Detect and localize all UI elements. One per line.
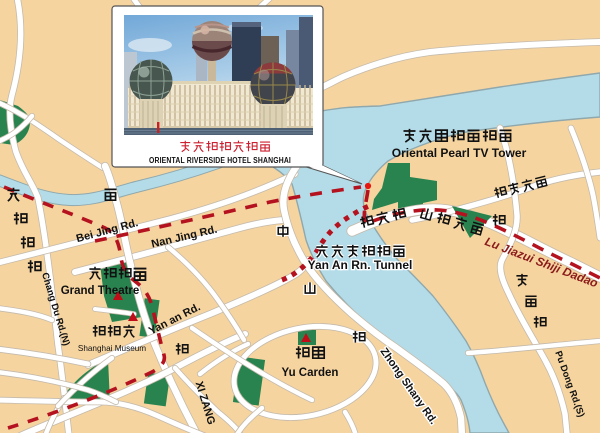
svg-text:Oriental Pearl TV Tower: Oriental Pearl TV Tower <box>392 146 527 160</box>
svg-text:Grand Theatre: Grand Theatre <box>61 285 140 297</box>
svg-text:Yan An Rn. Tunnel: Yan An Rn. Tunnel <box>308 258 413 272</box>
svg-text:ORIENTAL RIVERSIDE HOTEL SH: ORIENTAL RIVERSIDE HOTEL SHANGHAI <box>149 156 291 165</box>
svg-text:Yu Carden: Yu Carden <box>282 367 339 379</box>
svg-text:Shanghai Museum: Shanghai Museum <box>78 344 146 353</box>
